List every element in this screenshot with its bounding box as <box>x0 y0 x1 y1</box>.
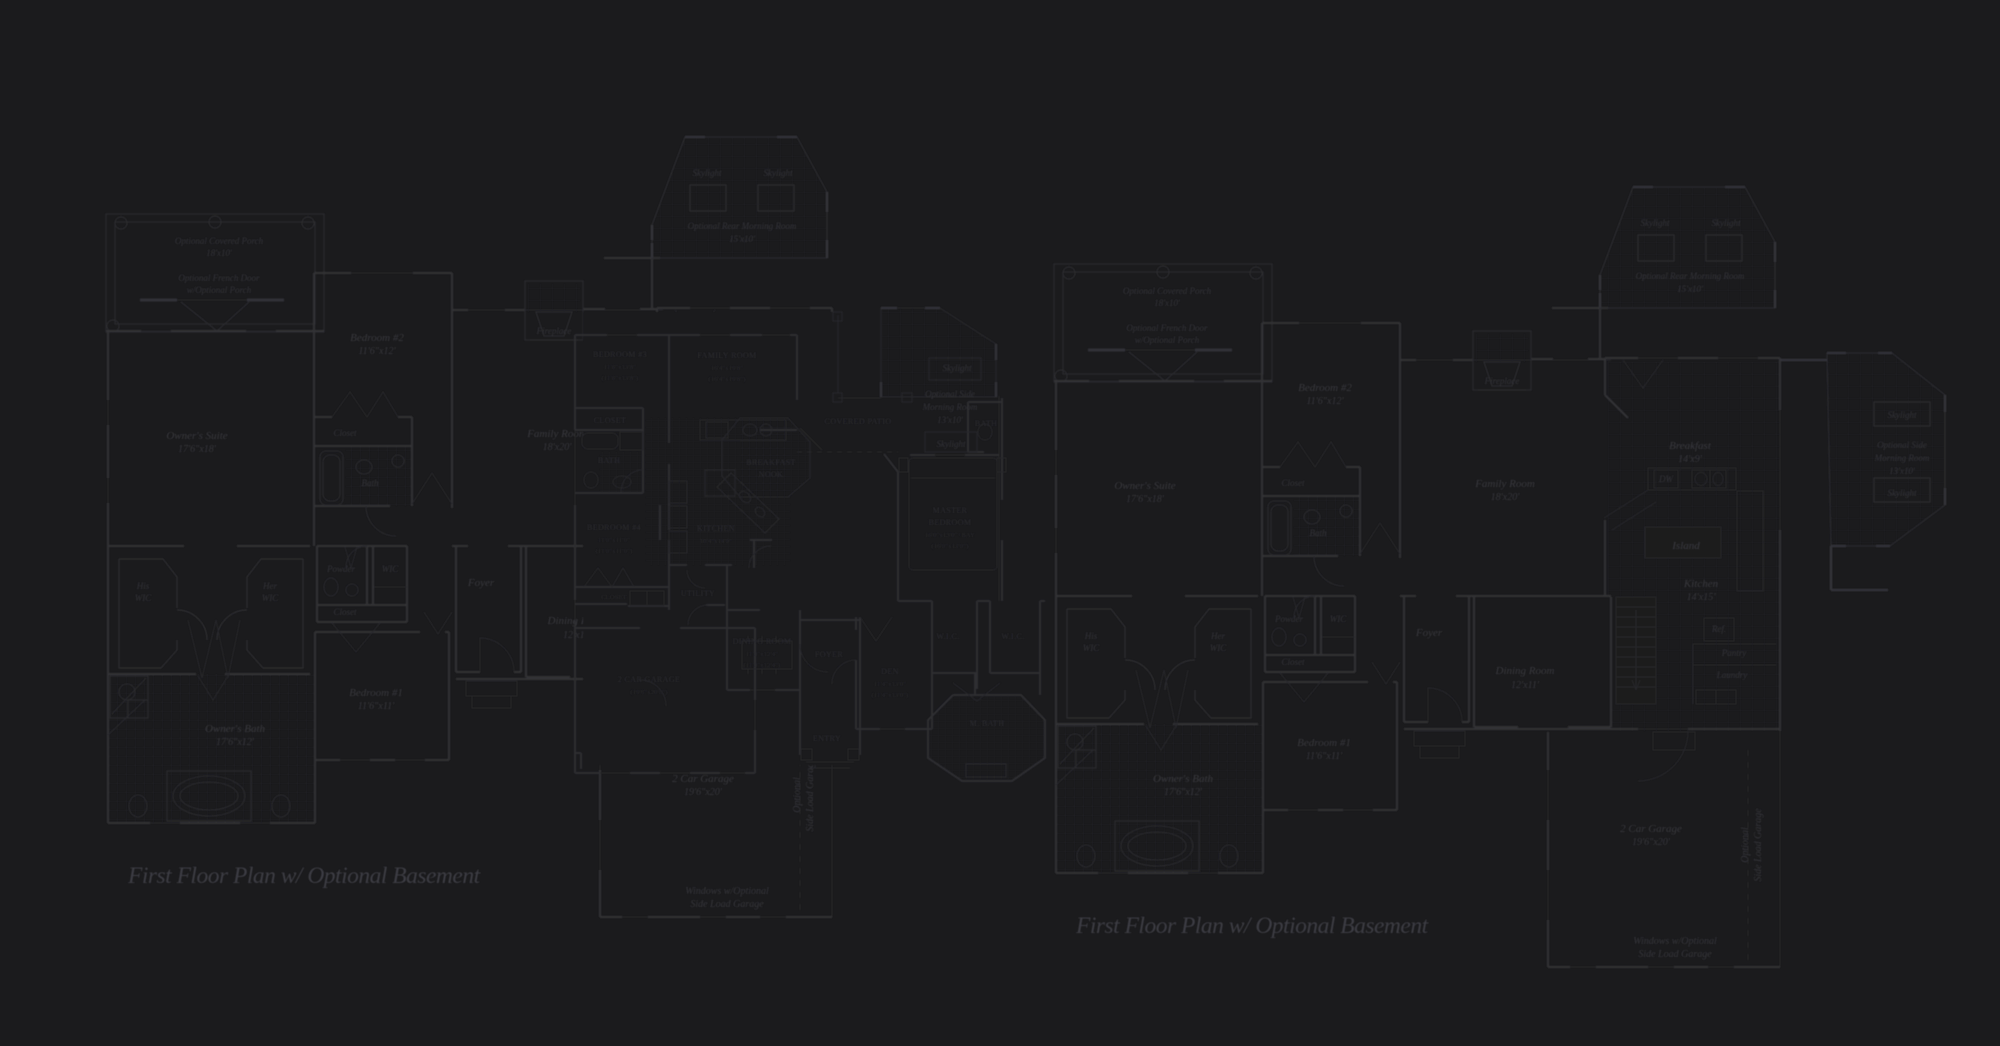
svg-text:CLOSET: CLOSET <box>594 416 627 425</box>
svg-text:Morning Room: Morning Room <box>922 402 978 412</box>
svg-text:(11'4"x13'0"): (11'4"x13'0") <box>871 692 908 699</box>
svg-text:DEN: DEN <box>881 667 899 676</box>
svg-text:2 CAR GARAGE: 2 CAR GARAGE <box>618 675 681 684</box>
svg-text:W.I.C.: W.I.C. <box>1001 632 1024 641</box>
svg-text:BEDROOM #3: BEDROOM #3 <box>593 350 647 359</box>
svg-text:11'0"x12'4": 11'0"x12'4" <box>746 651 779 658</box>
svg-text:Optional Side: Optional Side <box>925 389 975 399</box>
svg-text:13'x10': 13'x10' <box>937 415 964 425</box>
svg-text:ENTRY: ENTRY <box>813 734 841 743</box>
svg-text:(11'6"x13'8"): (11'6"x13'8") <box>601 375 638 382</box>
svg-text:MASTER: MASTER <box>933 506 968 515</box>
svg-text:NOOK: NOOK <box>759 470 784 479</box>
svg-text:W.I.C.: W.I.C. <box>936 632 959 641</box>
svg-text:BEDROOM: BEDROOM <box>929 518 972 527</box>
svg-text:BEDROOM #4: BEDROOM #4 <box>587 523 641 532</box>
svg-text:11'0"x11'0": 11'0"x11'0" <box>598 537 630 544</box>
svg-text:(16'4"x19'8"): (16'4"x19'8") <box>708 376 745 383</box>
svg-text:16'0"x13'0"+BAY: 16'0"x13'0"+BAY <box>925 532 975 539</box>
svg-text:KITCHEN: KITCHEN <box>697 524 735 533</box>
svg-text:FOYER: FOYER <box>815 650 843 659</box>
svg-text:(16'0"x13'0"): (16'0"x13'0") <box>931 543 968 550</box>
svg-text:(11'0"x12'4"): (11'0"x12'4") <box>743 662 780 669</box>
svg-text:COVERED PATIO: COVERED PATIO <box>825 417 892 426</box>
svg-text:(19'6"x20'0"): (19'6"x20'0") <box>630 689 667 696</box>
svg-text:FAMILY ROOM: FAMILY ROOM <box>697 351 756 360</box>
svg-text:(11'0"x11'0"): (11'0"x11'0") <box>596 548 633 555</box>
svg-text:16'4"x19'8": 16'4"x19'8" <box>711 365 744 372</box>
svg-text:M. BATH: M. BATH <box>970 719 1005 728</box>
svg-text:Skylight: Skylight <box>937 439 966 449</box>
svg-text:BREAKFAST: BREAKFAST <box>746 458 796 467</box>
svg-text:CLOSET: CLOSET <box>601 594 627 601</box>
svg-text:11'6"x13'8": 11'6"x13'8" <box>604 364 637 371</box>
svg-text:10'4"x14'0": 10'4"x14'0" <box>700 538 733 545</box>
svg-text:Skylight: Skylight <box>943 363 972 373</box>
svg-text:BATH: BATH <box>975 419 998 428</box>
svg-text:DINING ROOM: DINING ROOM <box>733 637 792 646</box>
svg-text:11'4"x13'0": 11'4"x13'0" <box>874 681 907 688</box>
svg-text:UTILITY: UTILITY <box>681 589 715 598</box>
svg-text:BATH: BATH <box>598 456 621 465</box>
